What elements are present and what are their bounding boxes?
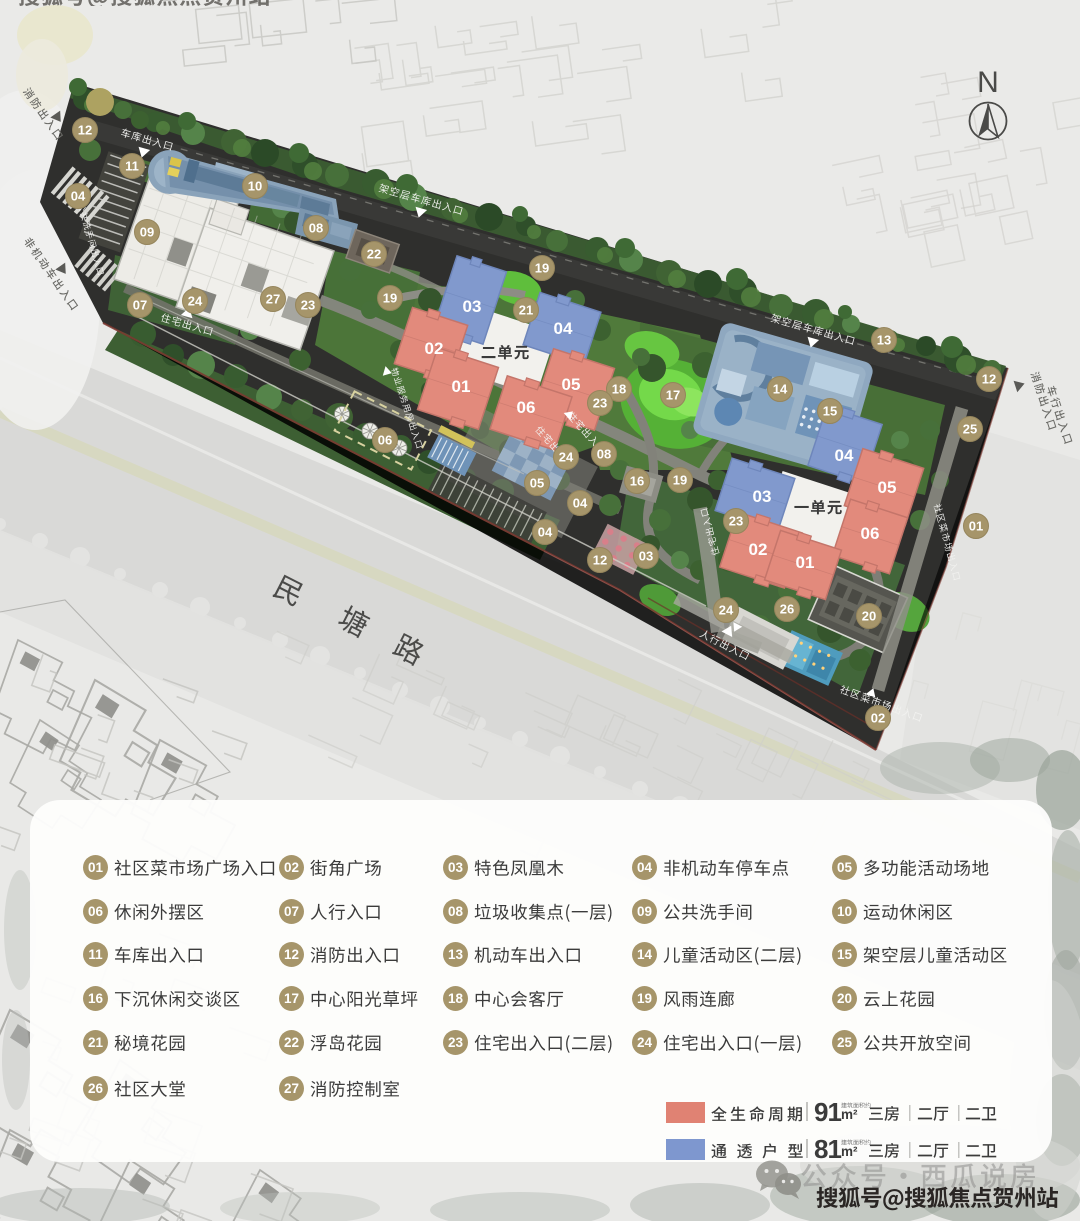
svg-text:21: 21 (519, 303, 533, 318)
svg-text:24: 24 (559, 450, 574, 465)
svg-text:04: 04 (573, 496, 588, 511)
svg-text:03: 03 (639, 549, 653, 564)
svg-text:02: 02 (749, 540, 768, 559)
svg-text:04: 04 (835, 446, 854, 465)
svg-text:17: 17 (666, 388, 680, 403)
svg-text:12: 12 (982, 372, 996, 387)
svg-text:06: 06 (861, 524, 880, 543)
svg-text:19: 19 (673, 473, 687, 488)
svg-text:12: 12 (593, 553, 607, 568)
svg-text:01: 01 (796, 553, 815, 572)
svg-text:24: 24 (719, 603, 734, 618)
svg-text:04: 04 (538, 525, 553, 540)
svg-text:07: 07 (133, 298, 147, 313)
svg-text:05: 05 (878, 478, 897, 497)
svg-text:20: 20 (862, 609, 876, 624)
svg-text:05: 05 (562, 375, 581, 394)
svg-text:02: 02 (871, 711, 885, 726)
svg-text:05: 05 (530, 476, 544, 491)
svg-text:03: 03 (753, 487, 772, 506)
svg-text:19: 19 (535, 261, 549, 276)
svg-text:26: 26 (780, 602, 794, 617)
svg-text:06: 06 (517, 398, 536, 417)
svg-text:15: 15 (823, 404, 837, 419)
svg-text:23: 23 (301, 298, 315, 313)
svg-text:11: 11 (125, 159, 139, 174)
svg-text:16: 16 (630, 474, 644, 489)
svg-text:23: 23 (729, 514, 743, 529)
svg-text:04: 04 (554, 319, 573, 338)
svg-text:09: 09 (140, 225, 154, 240)
svg-text:25: 25 (963, 422, 977, 437)
svg-text:24: 24 (188, 294, 203, 309)
svg-text:13: 13 (877, 333, 891, 348)
svg-text:10: 10 (248, 179, 262, 194)
svg-text:19: 19 (383, 291, 397, 306)
svg-text:08: 08 (597, 447, 611, 462)
svg-text:08: 08 (309, 221, 323, 236)
svg-text:27: 27 (266, 292, 280, 307)
svg-text:06: 06 (378, 433, 392, 448)
svg-text:02: 02 (425, 339, 444, 358)
svg-text:18: 18 (612, 382, 626, 397)
svg-text:14: 14 (773, 382, 788, 397)
svg-text:22: 22 (367, 247, 381, 262)
svg-text:23: 23 (593, 396, 607, 411)
svg-text:01: 01 (969, 519, 983, 534)
svg-text:03: 03 (463, 297, 482, 316)
svg-text:01: 01 (452, 377, 471, 396)
svg-text:N: N (977, 66, 999, 99)
svg-text:12: 12 (78, 123, 92, 138)
svg-text:04: 04 (71, 189, 86, 204)
